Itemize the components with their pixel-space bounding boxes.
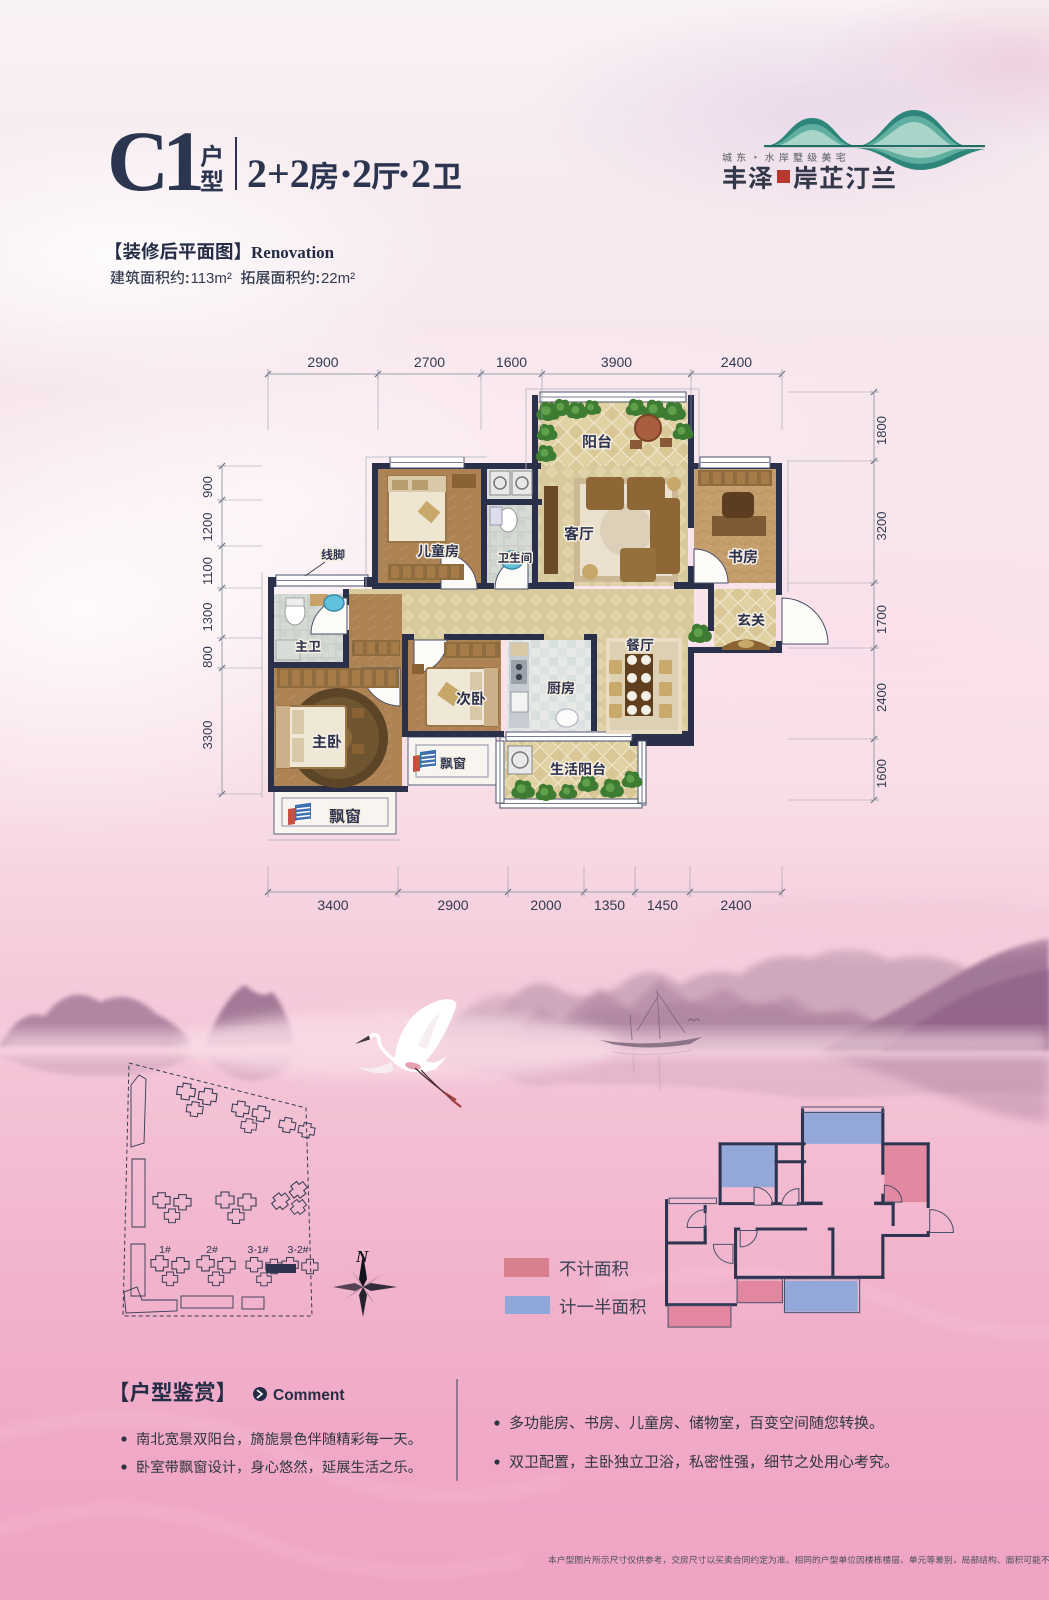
svg-text:1600: 1600	[874, 759, 889, 788]
svg-text:2#: 2#	[206, 1244, 218, 1256]
svg-text:2700: 2700	[414, 354, 445, 370]
svg-text:1300: 1300	[200, 603, 215, 632]
svg-text:1450: 1450	[647, 897, 678, 913]
svg-text:2: 2	[352, 151, 372, 196]
svg-text:N: N	[355, 1247, 369, 1266]
svg-text:3200: 3200	[874, 512, 889, 541]
svg-text:1#: 1#	[159, 1244, 171, 1256]
svg-text:3-2#: 3-2#	[287, 1244, 308, 1256]
svg-text:1600: 1600	[496, 354, 527, 370]
svg-text:3400: 3400	[317, 897, 348, 913]
svg-text:1350: 1350	[594, 897, 625, 913]
svg-text:Comment: Comment	[273, 1387, 344, 1404]
svg-text:Renovation: Renovation	[251, 243, 335, 262]
svg-text:113m²: 113m²	[190, 270, 231, 287]
svg-text:3300: 3300	[200, 721, 215, 750]
svg-text:800: 800	[200, 646, 215, 668]
svg-text:2: 2	[411, 151, 431, 196]
svg-text:C1: C1	[107, 113, 201, 209]
svg-text:2400: 2400	[721, 354, 752, 370]
svg-text:2900: 2900	[307, 354, 338, 370]
svg-text:2900: 2900	[437, 897, 468, 913]
svg-text:1100: 1100	[200, 557, 215, 585]
svg-text:2000: 2000	[530, 897, 561, 913]
svg-text:1700: 1700	[874, 605, 889, 634]
svg-text:900: 900	[200, 476, 215, 498]
svg-text:1800: 1800	[874, 416, 889, 445]
svg-text:3900: 3900	[601, 354, 632, 370]
svg-text:1200: 1200	[200, 513, 215, 542]
svg-text:2400: 2400	[720, 897, 751, 913]
svg-text:22m²: 22m²	[321, 270, 355, 287]
svg-text:2+2: 2+2	[247, 151, 310, 196]
svg-text:2400: 2400	[874, 683, 889, 712]
svg-text:3-1#: 3-1#	[247, 1244, 268, 1256]
